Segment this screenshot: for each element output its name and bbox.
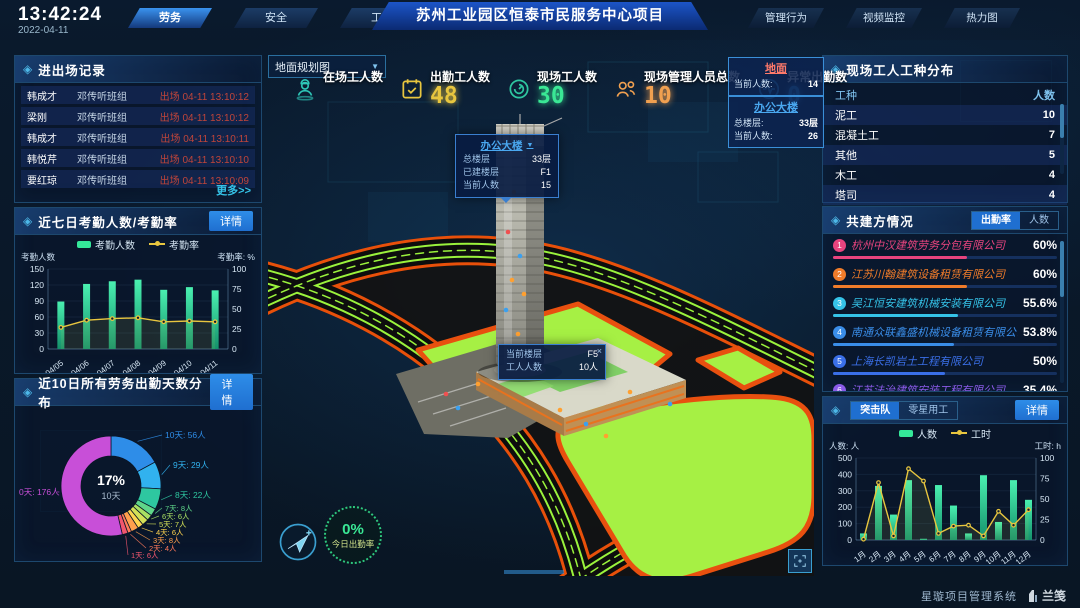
building-tooltip[interactable]: 办公大楼 ▼ 总楼层33层已建楼层F1当前人数15 — [455, 134, 559, 198]
svg-text:100: 100 — [838, 519, 852, 529]
record-row: 韩成才邓传听班组出场 04-11 13:10:11 — [21, 128, 255, 146]
stat-在场工人数: 在场工人数 — [292, 68, 383, 107]
footer: 星璇项目管理系统 兰笺 — [921, 587, 1066, 604]
partner-row[interactable]: 2江苏川翰建筑设备租赁有限公司60% — [823, 263, 1067, 292]
progress-track — [833, 256, 1057, 259]
svg-text:0: 0 — [847, 535, 852, 545]
info-box-title: 办公大楼 — [734, 99, 818, 115]
svg-text:3月: 3月 — [882, 549, 897, 564]
progress-fill — [833, 343, 954, 346]
svg-text:12月: 12月 — [1014, 549, 1033, 564]
svg-text:1月: 1月 — [852, 549, 867, 564]
partner-name: 江苏川翰建筑设备租赁有限公司 — [851, 266, 1028, 282]
svg-text:10天: 10天 — [101, 491, 120, 501]
diamond-icon — [23, 214, 32, 228]
distribution-donut-chart: 10天: 56人9天: 29人8天: 22人7天: 8人6天: 6人5天: 7人… — [17, 408, 257, 560]
diamond-icon — [831, 403, 840, 417]
partner-percent: 60% — [1033, 238, 1057, 252]
rank-badge: 6 — [833, 384, 846, 393]
svg-text:150: 150 — [30, 264, 44, 274]
header-tab-安全[interactable]: 安全 — [234, 8, 318, 28]
svg-text:60: 60 — [35, 312, 45, 322]
partner-row[interactable]: 1杭州中汉建筑劳务分包有限公司60% — [823, 234, 1067, 263]
top-header: 13:42:24 2022-04-11 劳务安全工期 苏州工业园区恒泰市民服务中… — [0, 0, 1080, 40]
stat-value — [323, 85, 383, 107]
header-tab-劳务[interactable]: 劳务 — [128, 8, 212, 28]
svg-text:1天: 6人: 1天: 6人 — [131, 551, 159, 560]
legend-item-考勤率[interactable]: 考勤率 — [149, 237, 199, 252]
partner-row[interactable]: 6江苏法治建筑安装工程有限公司35.4% — [823, 379, 1067, 392]
gauge-value: 0% — [342, 521, 364, 538]
tooltip-row: 当前人数15 — [463, 179, 551, 192]
axis-labels: 人数: 人 工时: h — [823, 440, 1067, 452]
progress-track — [833, 285, 1057, 288]
svg-text:90: 90 — [35, 296, 45, 306]
scrollbar[interactable] — [1060, 104, 1064, 174]
attendance-panel: 近七日考勤人数/考勤率 详情 考勤人数考勤率 考勤人数 考勤率: % 03060… — [14, 207, 262, 374]
stat-现场管理人员总数: 现场管理人员总数10 — [613, 68, 740, 107]
svg-text:0: 0 — [39, 344, 44, 354]
trade-row: 混凝土工7 — [823, 125, 1067, 145]
gauge-icon — [506, 76, 532, 107]
svg-text:10天: 56人: 10天: 56人 — [165, 430, 206, 440]
header-tab-热力图[interactable]: 热力图 — [944, 8, 1020, 28]
panel-header: 近10日所有劳务出勤天数分布 详情 — [15, 379, 261, 406]
partner-percent: 50% — [1033, 354, 1057, 368]
chart-legend: 人数工时 — [823, 426, 1067, 440]
partner-row[interactable]: 5上海长凯岩土工程有限公司50% — [823, 350, 1067, 379]
header-tabs-right: 管理行为视频监控热力图 — [748, 8, 1020, 28]
svg-text:0: 0 — [1040, 535, 1045, 545]
svg-text:04/08: 04/08 — [121, 358, 143, 373]
partner-name: 上海长凯岩土工程有限公司 — [851, 353, 1028, 369]
partner-name: 江苏法治建筑安装工程有限公司 — [851, 382, 1018, 392]
svg-text:9天: 29人: 9天: 29人 — [173, 460, 209, 470]
panel-title: 近10日所有劳务出勤天数分布 — [38, 373, 204, 411]
svg-text:50: 50 — [232, 304, 242, 314]
partner-row[interactable]: 4南通众联鑫盛机械设备租赁有限公司53.8% — [823, 321, 1067, 350]
stat-现场工人数: 现场工人数30 — [506, 68, 597, 107]
floor-tooltip[interactable]: × 当前楼层F5工人人数10人 — [498, 344, 606, 380]
current-date: 2022-04-11 — [18, 25, 102, 36]
legend-item-人数[interactable]: 人数 — [899, 426, 937, 441]
stat-label: 在场工人数 — [323, 68, 383, 85]
dashboard: 13:42:24 2022-04-11 劳务安全工期 苏州工业园区恒泰市民服务中… — [0, 0, 1080, 608]
progress-track — [833, 343, 1057, 346]
svg-text:0: 0 — [232, 344, 237, 354]
stats-row: 在场工人数出勤工人数48现场工人数30现场管理人员总数10异常出勤数0 — [292, 68, 744, 107]
current-time: 13:42:24 — [18, 4, 102, 26]
y-axis-label: 考勤人数 — [21, 251, 55, 263]
partner-percent: 55.6% — [1023, 296, 1057, 310]
chevron-down-icon[interactable]: ▼ — [527, 142, 534, 149]
progress-fill — [833, 285, 967, 288]
panel-title: 进出场记录 — [38, 60, 106, 79]
y2-axis-label: 工时: h — [1035, 440, 1061, 452]
svg-text:6月: 6月 — [927, 549, 942, 564]
people-icon — [613, 76, 639, 107]
rank-badge: 5 — [833, 355, 846, 368]
tab-突击队[interactable]: 突击队 — [851, 402, 899, 419]
panel-title: 共建方情况 — [846, 211, 914, 230]
trade-row: 木工4 — [823, 165, 1067, 185]
progress-track — [833, 314, 1057, 317]
gauge-label: 今日出勤率 — [332, 538, 375, 550]
svg-text:8月: 8月 — [957, 549, 972, 564]
partners-panel: 共建方情况 出勤率人数 1杭州中汉建筑劳务分包有限公司60%2江苏川翰建筑设备租… — [822, 206, 1068, 392]
stat-出勤工人数: 出勤工人数48 — [399, 68, 490, 107]
info-box-办公大楼[interactable]: 办公大楼总楼层:33层当前人数:26 — [728, 96, 824, 148]
diamond-icon — [831, 213, 840, 227]
svg-text:7月: 7月 — [942, 549, 957, 564]
stat-value: 48 — [430, 85, 490, 107]
info-box-title: 地面 — [734, 60, 818, 76]
close-icon[interactable]: × — [597, 346, 602, 356]
fullscreen-button[interactable] — [788, 549, 812, 573]
vendor-logo-text: 兰笺 — [1042, 587, 1066, 604]
rank-badge: 2 — [833, 268, 846, 281]
svg-text:17%: 17% — [97, 472, 126, 488]
legend-item-考勤人数[interactable]: 考勤人数 — [77, 237, 135, 252]
distribution-panel: 近10日所有劳务出勤天数分布 详情 10天: 56人9天: 29人8天: 22人… — [14, 378, 262, 562]
more-link[interactable]: 更多>> — [216, 182, 251, 198]
svg-text:30: 30 — [35, 328, 45, 338]
tab-零星用工[interactable]: 零星用工 — [899, 402, 957, 419]
panel-header: 进出场记录 — [15, 56, 261, 83]
partner-percent: 35.4% — [1023, 383, 1057, 392]
scrollbar[interactable] — [1060, 241, 1064, 383]
teams-chart: 010020030040050002550751001月2月3月4月5月6月7月… — [826, 452, 1064, 564]
partner-row[interactable]: 3吴江恒安建筑机械安装有限公司55.6% — [823, 292, 1067, 321]
svg-text:04/11: 04/11 — [199, 358, 220, 373]
svg-text:2月: 2月 — [867, 549, 882, 564]
svg-text:75: 75 — [1040, 474, 1050, 484]
system-name: 星璇项目管理系统 — [921, 588, 1017, 604]
panel-header: 现场工人工种分布 — [823, 56, 1067, 83]
record-row: 韩成才邓传听班组出场 04-11 13:10:12 — [21, 86, 255, 104]
y2-axis-label: 考勤率: % — [217, 251, 255, 263]
calendar-icon — [399, 76, 425, 107]
svg-text:500: 500 — [838, 453, 852, 463]
tooltip-row: 当前楼层F5 — [506, 348, 598, 361]
svg-text:04/07: 04/07 — [95, 358, 117, 373]
partner-name: 吴江恒安建筑机械安装有限公司 — [851, 295, 1018, 311]
info-box-row: 总楼层:33层 — [734, 117, 818, 130]
axis-labels: 考勤人数 考勤率: % — [15, 251, 261, 263]
progress-fill — [833, 372, 945, 375]
rank-badge: 4 — [833, 326, 846, 339]
stat-value: 30 — [537, 85, 597, 107]
worker-icon — [292, 76, 318, 107]
svg-text:100: 100 — [1040, 453, 1054, 463]
svg-text:50: 50 — [1040, 494, 1050, 504]
map-glow-strip — [504, 570, 564, 574]
trades-panel: 现场工人工种分布 工种人数 泥工10混凝土工7其他5木工4塔司4 — [822, 55, 1068, 203]
legend-item-工时[interactable]: 工时 — [951, 426, 991, 441]
attendance-chart: 0306090120150025507510004/0504/0604/0704… — [18, 263, 256, 373]
detail-button[interactable]: 详情 — [1015, 400, 1059, 420]
svg-text:04/05: 04/05 — [44, 358, 66, 373]
panel-header: 共建方情况 出勤率人数 — [823, 207, 1067, 234]
svg-text:120: 120 — [30, 280, 44, 290]
entry-exit-panel: 进出场记录 韩成才邓传听班组出场 04-11 13:10:12梁刚邓传听班组出场… — [14, 55, 262, 203]
svg-text:04/06: 04/06 — [69, 358, 91, 373]
building-tooltip-title: 办公大楼 — [481, 138, 523, 153]
panel-header: 突击队零星用工 详情 — [823, 397, 1067, 424]
trade-row: 其他5 — [823, 145, 1067, 165]
tab-出勤率[interactable]: 出勤率 — [972, 212, 1020, 229]
compass-icon — [278, 522, 318, 562]
svg-text:0天: 176人: 0天: 176人 — [19, 487, 60, 497]
panel-title: 现场工人工种分布 — [846, 60, 954, 79]
team-tabs: 突击队零星用工 — [850, 401, 958, 420]
detail-button[interactable]: 详情 — [210, 374, 253, 410]
svg-text:300: 300 — [838, 486, 852, 496]
detail-button[interactable]: 详情 — [209, 211, 253, 231]
table-header: 工种人数 — [823, 83, 1067, 105]
chart-legend: 考勤人数考勤率 — [15, 237, 261, 251]
y-axis-label: 人数: 人 — [829, 440, 859, 452]
partner-percent: 53.8% — [1023, 325, 1057, 339]
partner-name: 杭州中汉建筑劳务分包有限公司 — [851, 237, 1028, 253]
page-title: 苏州工业园区恒泰市民服务中心项目 — [372, 2, 708, 30]
svg-text:5月: 5月 — [912, 549, 927, 564]
diamond-icon — [23, 385, 32, 399]
partner-tabs: 出勤率人数 — [971, 211, 1059, 230]
svg-text:200: 200 — [838, 502, 852, 512]
panel-header: 近七日考勤人数/考勤率 详情 — [15, 208, 261, 235]
svg-text:25: 25 — [232, 324, 242, 334]
svg-text:04/09: 04/09 — [147, 358, 169, 373]
clock: 13:42:24 2022-04-11 — [18, 4, 102, 36]
vendor-logo: 兰笺 — [1027, 587, 1066, 604]
svg-text:75: 75 — [232, 284, 242, 294]
rank-badge: 3 — [833, 297, 846, 310]
svg-text:25: 25 — [1040, 515, 1050, 525]
progress-track — [833, 372, 1057, 375]
tower-logo-icon — [1027, 589, 1039, 603]
partner-percent: 60% — [1033, 267, 1057, 281]
svg-text:4月: 4月 — [897, 549, 912, 564]
progress-fill — [833, 314, 958, 317]
header-tab-管理行为[interactable]: 管理行为 — [748, 8, 824, 28]
fullscreen-icon — [793, 554, 807, 568]
info-box-地面[interactable]: 地面当前人数:14 — [728, 57, 824, 96]
header-tab-视频监控[interactable]: 视频监控 — [846, 8, 922, 28]
record-row: 韩悦芹邓传听班组出场 04-11 13:10:10 — [21, 149, 255, 167]
compass-control[interactable] — [278, 522, 318, 567]
svg-text:400: 400 — [838, 469, 852, 479]
tooltip-row: 已建楼层F1 — [463, 166, 551, 179]
svg-text:8天: 22人: 8天: 22人 — [175, 490, 211, 500]
svg-text:100: 100 — [232, 264, 246, 274]
panel-title: 近七日考勤人数/考勤率 — [38, 212, 177, 231]
rank-badge: 1 — [833, 239, 846, 252]
today-attendance-gauge: 0% 今日出勤率 — [324, 506, 382, 564]
record-row: 梁刚邓传听班组出场 04-11 13:10:12 — [21, 107, 255, 125]
diamond-icon — [23, 62, 32, 76]
trade-row: 泥工10 — [823, 105, 1067, 125]
info-box-row: 当前人数:26 — [734, 130, 818, 143]
tab-人数[interactable]: 人数 — [1020, 212, 1058, 229]
svg-text:04/10: 04/10 — [172, 358, 194, 373]
partner-name: 南通众联鑫盛机械设备租赁有限公司 — [851, 324, 1018, 340]
stat-value: 10 — [644, 85, 740, 107]
trade-row: 塔司4 — [823, 185, 1067, 205]
tooltip-row: 工人人数10人 — [506, 361, 598, 374]
info-box-row: 当前人数:14 — [734, 78, 818, 91]
progress-fill — [833, 256, 967, 259]
tooltip-row: 总楼层33层 — [463, 153, 551, 166]
teams-panel: 突击队零星用工 详情 人数工时 人数: 人 工时: h 010020030040… — [822, 396, 1068, 566]
